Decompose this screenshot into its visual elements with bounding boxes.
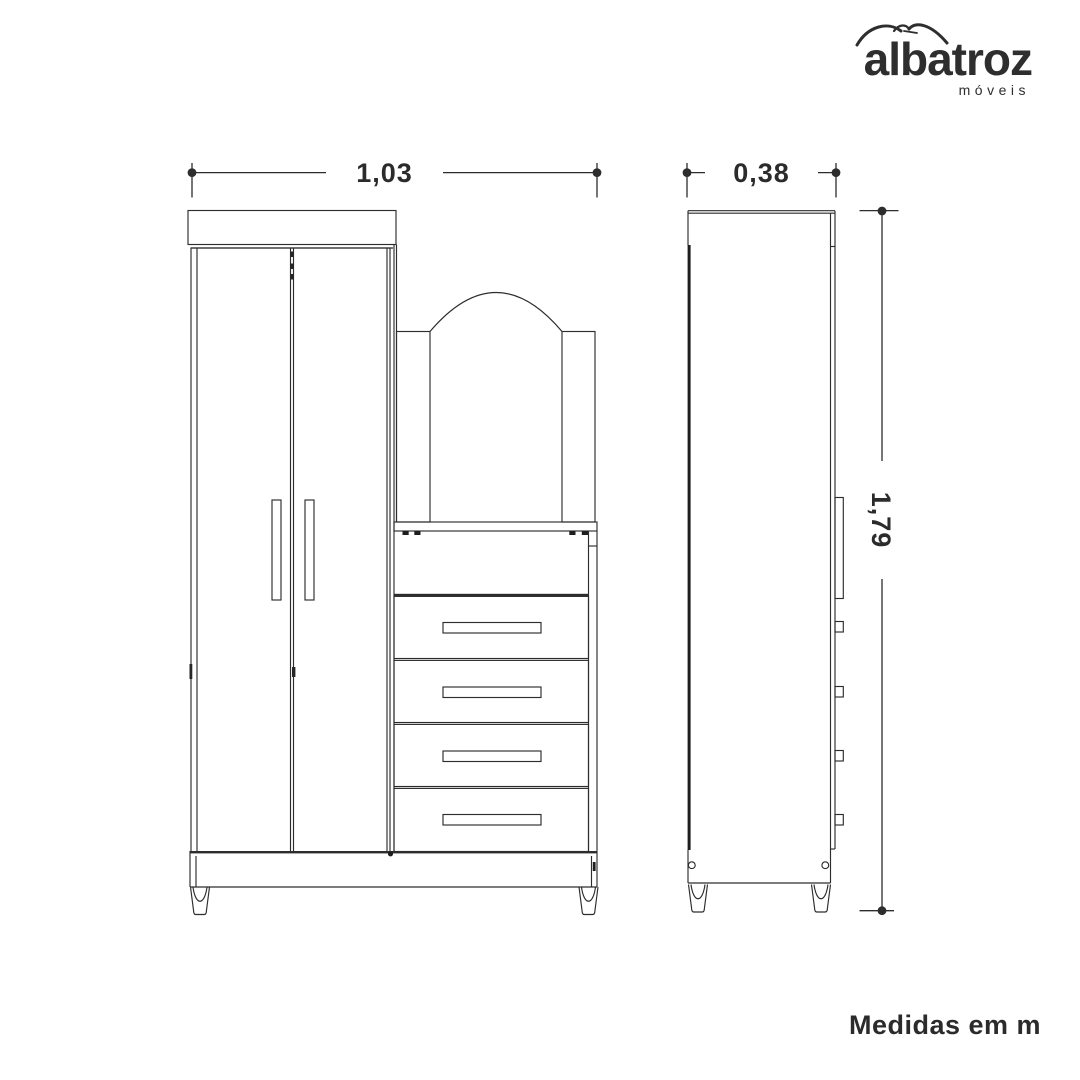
foot-side-right xyxy=(812,885,831,913)
cam-lock-right xyxy=(822,862,829,869)
foot-side-left xyxy=(689,885,708,913)
brand-logo: albatroz móveis xyxy=(852,14,1032,97)
mirror-section xyxy=(394,245,595,852)
units-note: Medidas em m xyxy=(849,1010,1041,1041)
albatross-swoosh-icon xyxy=(854,18,950,50)
drawer-3-handle xyxy=(443,751,541,762)
front-feet xyxy=(191,887,599,915)
side-door-handle-profile xyxy=(835,498,843,599)
cam-lock-left xyxy=(688,862,695,869)
door-handle-left xyxy=(272,500,281,600)
drawer-1-handle xyxy=(443,623,541,634)
height-label: 1,79 xyxy=(863,461,899,579)
drawer-stack xyxy=(394,531,597,852)
side-depth-label: 0,38 xyxy=(705,155,818,191)
drawer-1 xyxy=(394,596,589,658)
mirror-post-left xyxy=(397,332,431,523)
front-view xyxy=(188,211,598,915)
foot-front-right xyxy=(579,887,598,915)
technical-drawing-canvas xyxy=(0,0,1080,1080)
brand-subtitle: móveis xyxy=(852,83,1032,97)
side-drawer-4-handle-profile xyxy=(835,815,843,826)
hinge-marks xyxy=(190,252,296,680)
wardrobe-top-panel xyxy=(188,211,396,249)
foot-front-left xyxy=(191,887,210,915)
mirror-arch xyxy=(430,293,562,332)
front-width-label: 1,03 xyxy=(326,155,443,191)
door-front-edge xyxy=(688,245,691,850)
drawer-3 xyxy=(394,724,589,786)
drawer-2-handle xyxy=(443,687,541,698)
side-drawer-1-handle-profile xyxy=(835,622,843,633)
side-feet xyxy=(689,885,831,913)
furniture-dimension-diagram-page: { "logo": { "brand": "albatroz", "subtit… xyxy=(0,0,1080,1080)
base-plinth xyxy=(190,851,597,887)
side-view xyxy=(688,211,844,912)
drawer-2 xyxy=(394,660,589,722)
drawer-4 xyxy=(394,788,589,851)
dresser-shelf xyxy=(394,522,597,535)
side-drawer-3-handle-profile xyxy=(835,751,843,762)
drawer-4-handle xyxy=(443,815,541,826)
side-drawer-2-handle-profile xyxy=(835,687,843,698)
edge-mark xyxy=(593,862,596,871)
wardrobe-body xyxy=(190,248,391,852)
dimension-lines xyxy=(188,163,899,915)
door-handle-right xyxy=(305,500,314,600)
shelf-bracket-marks xyxy=(403,531,589,535)
joint-dot xyxy=(388,851,393,856)
beak-line xyxy=(904,31,917,33)
mirror-post-right xyxy=(562,332,595,523)
